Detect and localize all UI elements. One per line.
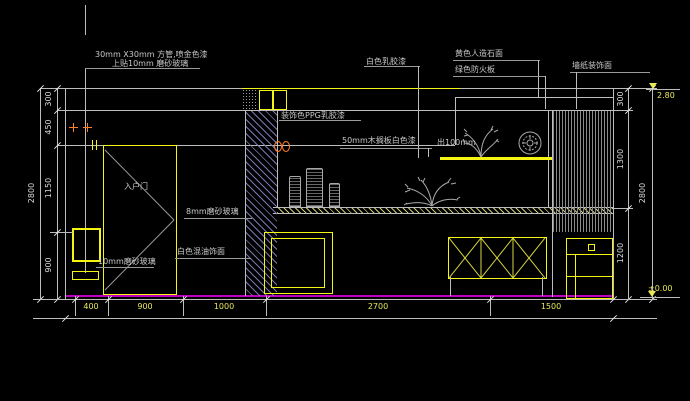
cabinet-leg-right: [542, 277, 543, 296]
dim-bottom-2700: 2700: [358, 302, 398, 311]
right-total-dimline: [652, 88, 653, 299]
centerline-top: [85, 5, 86, 35]
shelf-note-label: 50mm木搁板白色漆: [342, 136, 416, 145]
cad-elevation-drawing: 入户门: [0, 0, 690, 401]
white-mixed-underline: [175, 258, 251, 259]
drawer-divider-1: [567, 254, 612, 255]
switch-box: [72, 228, 101, 262]
glass10-label: 10mm磨砂玻璃: [98, 257, 156, 266]
wall-lamp-1: [274, 141, 282, 152]
dim-bottom-1500: 1500: [531, 302, 571, 311]
ceiling-line-yellow: [242, 88, 460, 89]
right-wall-line: [613, 88, 614, 300]
dim-left-900: 900: [44, 243, 54, 287]
bottom-chain-dimline: [33, 299, 657, 300]
drawer-cabinet: [566, 238, 613, 299]
ppg-underline: [279, 120, 361, 121]
left-total-dimline: [40, 88, 41, 299]
entry-door-label: 入户门: [124, 182, 148, 191]
shelf-leader: [428, 148, 429, 157]
wallpaper-label: 墙纸装饰面: [572, 61, 612, 70]
door-swing-lines: [104, 146, 176, 294]
level-top-triangle: [649, 83, 657, 89]
strip-right-edge: [277, 110, 278, 207]
fire-board-leader: [545, 76, 546, 109]
cabinet-leg-left: [450, 277, 451, 296]
door-jamb-tick-1: [92, 140, 93, 150]
entry-door: 入户门: [103, 145, 177, 295]
fire-board-underline: [453, 76, 545, 77]
wall-lamp-2: [282, 141, 290, 152]
dim-bottom-900: 900: [125, 302, 165, 311]
wallpaper-leader: [576, 72, 577, 109]
white-latex-leader: [418, 66, 419, 158]
dim-left-total-2800: 2800: [27, 171, 37, 215]
dim-right-300: 300: [616, 77, 626, 121]
vase-2: [306, 168, 323, 207]
left-ext-232: [50, 232, 73, 233]
stone-band-line: [455, 97, 613, 98]
ppg-paint-label: 装饰色PPG乳胶漆: [281, 111, 345, 120]
plant-on-counter: [403, 176, 461, 207]
glass10-underline: [96, 267, 154, 268]
dim-right-total-2800: 2800: [638, 171, 648, 215]
stone-top-leader: [538, 60, 539, 97]
strip-left-edge: [245, 110, 246, 296]
left-chain-dimline: [57, 88, 58, 299]
shelf-note-underline: [340, 148, 432, 149]
door-jamb-tick-2: [96, 140, 97, 150]
level-top-line: [646, 89, 680, 90]
shelf-depth-label: 出100mm: [437, 138, 476, 147]
sliding-door-cabinet: [448, 237, 547, 279]
tube-note-line2: 上贴10mm 磨砂玻璃: [112, 59, 188, 68]
square-tube-block-2: [273, 90, 287, 110]
stone-top-label: 黄色人造石面: [455, 49, 503, 58]
tube-note-line1: 30mm X30mm 方管,喷金色漆: [95, 50, 208, 59]
drawer-divider-2: [567, 276, 612, 277]
column-hatch: [242, 89, 258, 110]
right-ext-208: [613, 208, 633, 209]
glass8-underline: [184, 218, 252, 219]
left-wall-line: [65, 88, 66, 300]
white-latex-label: 白色乳胶漆: [366, 57, 406, 66]
bottom-outer-dimline: [33, 318, 657, 319]
white-mixed-label: 白色混油饰面: [177, 247, 225, 256]
dim-right-1300: 1300: [616, 137, 626, 181]
vase-3: [329, 183, 340, 207]
dim-bottom-1000: 1000: [204, 302, 244, 311]
floor-line-magenta: [65, 295, 614, 297]
dim-right-1200: 1200: [616, 231, 626, 275]
square-tube-block-1: [259, 90, 273, 110]
stone-top-underline: [453, 60, 540, 61]
base-cabinet-left-door: [271, 238, 325, 288]
cabinet-door-x-pattern: [449, 238, 546, 278]
white-latex-underline: [364, 66, 420, 67]
level-top-value: 2.80: [657, 91, 675, 100]
drawer-handle: [588, 244, 595, 251]
louver-panel: [553, 111, 613, 232]
vase-1: [289, 176, 301, 207]
tube-note-underline: [85, 68, 200, 69]
dim-left-1150: 1150: [44, 166, 54, 210]
wallpaper-underline: [570, 72, 650, 73]
right-chain-dimline: [628, 88, 629, 299]
decorative-plate: [517, 129, 543, 157]
glass8-label: 8mm磨砂玻璃: [186, 207, 239, 216]
dim-left-450: 450: [44, 105, 54, 149]
spotlight-mark-2: [83, 123, 92, 132]
skirting-block: [72, 271, 99, 280]
fire-board-label: 绿色防火板: [455, 65, 495, 74]
drawer-stile: [575, 254, 576, 298]
spotlight-mark-1: [69, 123, 78, 132]
level-bottom-value: ±0.00: [648, 284, 673, 293]
level-bottom-line: [640, 297, 680, 298]
